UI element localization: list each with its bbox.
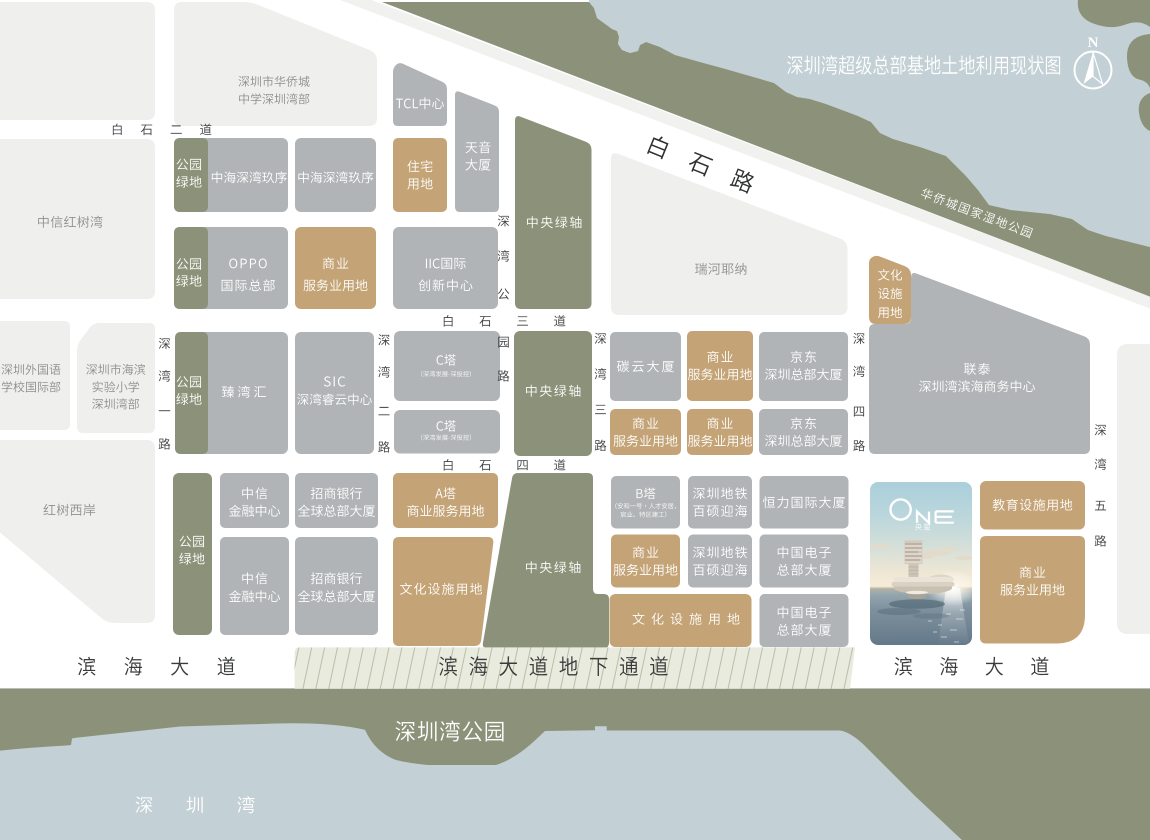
svg-text:N: N — [1088, 35, 1099, 51]
